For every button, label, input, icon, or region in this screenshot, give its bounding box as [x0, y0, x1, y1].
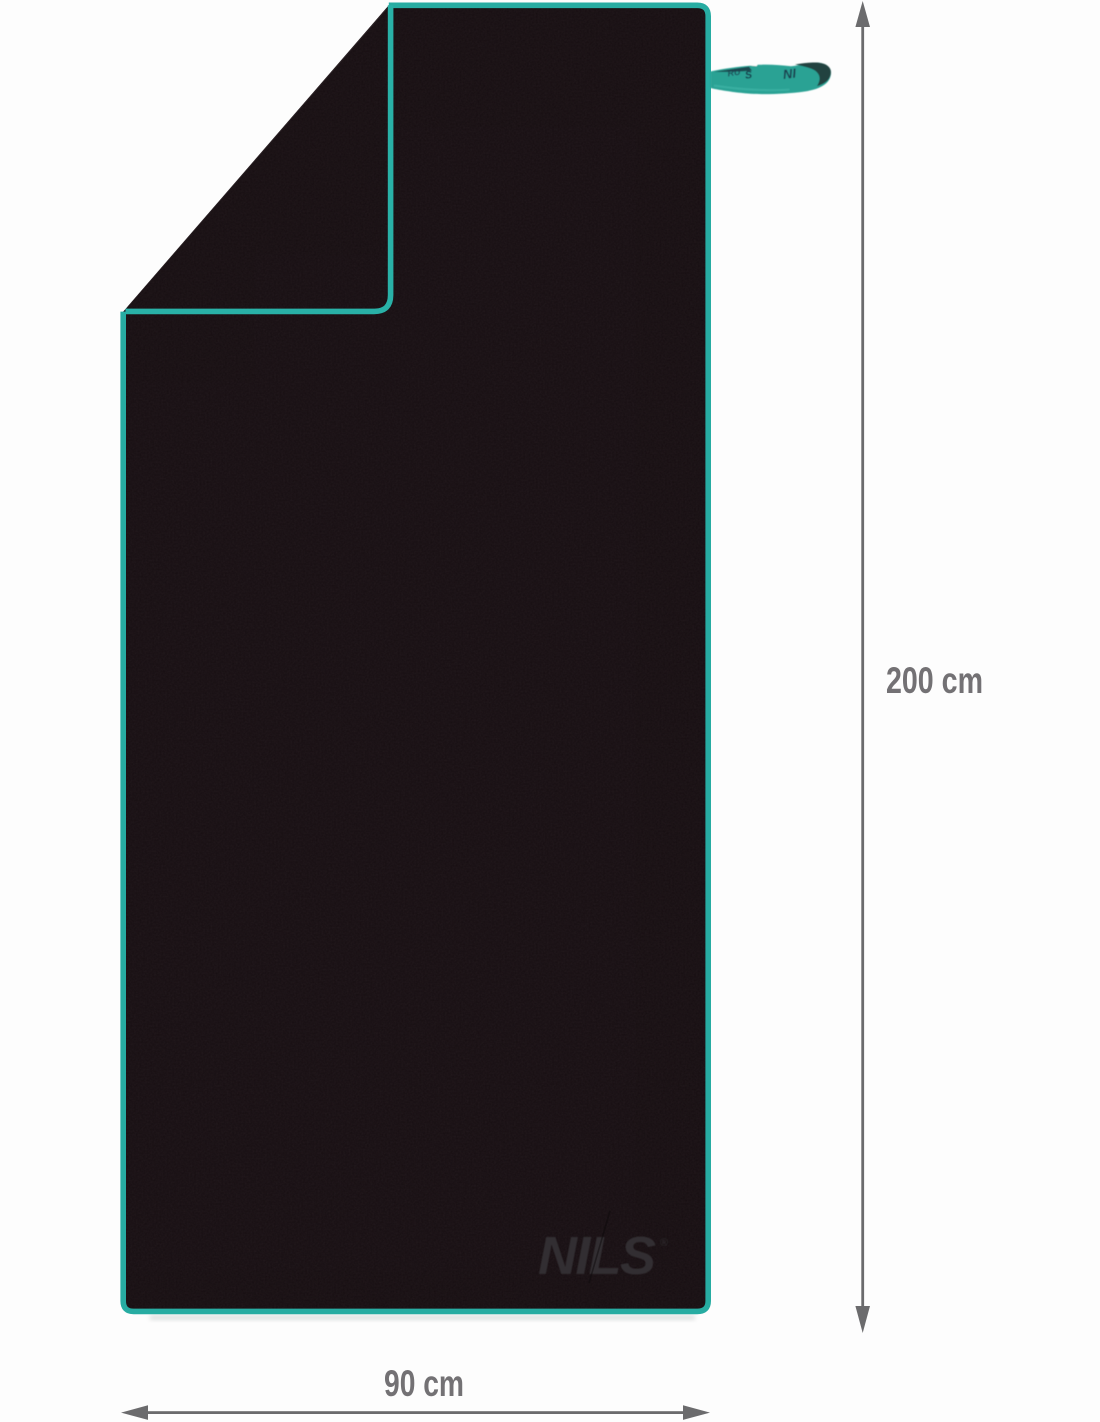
svg-text:NI: NI: [782, 65, 797, 82]
svg-text:RU: RU: [727, 66, 742, 78]
svg-text:90 cm: 90 cm: [384, 1363, 464, 1404]
svg-text:®: ®: [660, 1237, 668, 1249]
svg-text:200 cm: 200 cm: [886, 660, 983, 701]
